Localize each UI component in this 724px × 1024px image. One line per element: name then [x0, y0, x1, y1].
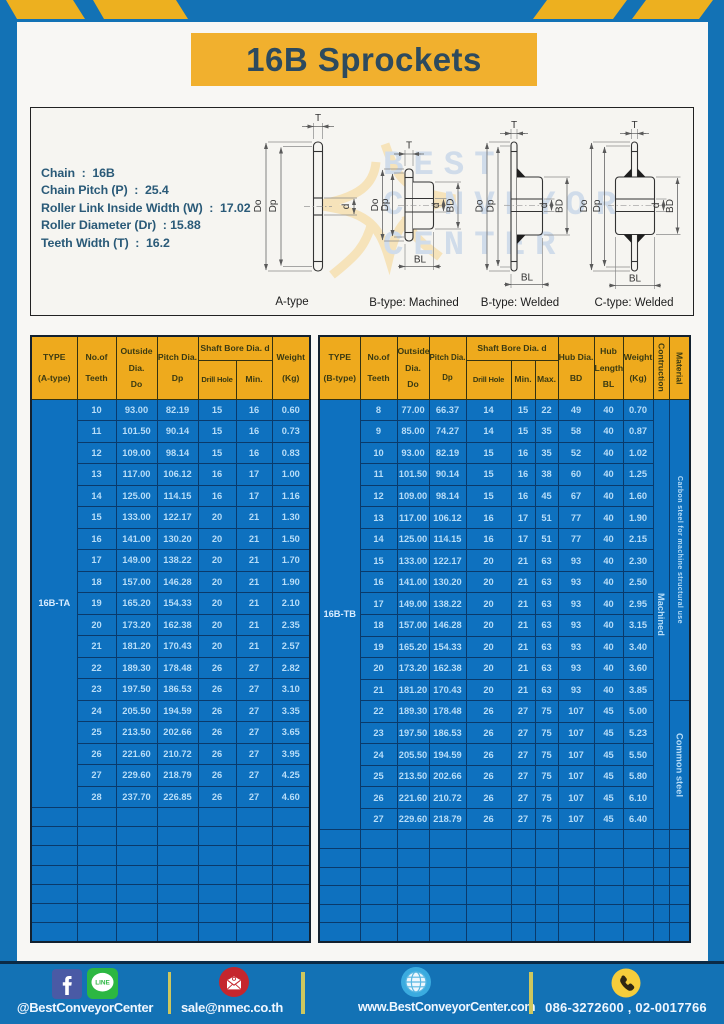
svg-text:Do: Do — [475, 199, 486, 212]
svg-text:T: T — [511, 120, 517, 131]
svg-text:d: d — [341, 204, 352, 210]
svg-text:Dp: Dp — [268, 199, 279, 212]
svg-text:LINE: LINE — [95, 980, 110, 987]
svg-text:d: d — [539, 203, 550, 209]
svg-text:Do: Do — [253, 199, 264, 212]
svg-text:BD: BD — [665, 199, 676, 213]
svg-text:Dp: Dp — [592, 199, 603, 212]
svg-text:T: T — [315, 113, 321, 124]
svg-text:d: d — [651, 203, 662, 209]
svg-text:BL: BL — [414, 255, 427, 266]
svg-text:BL: BL — [521, 273, 534, 284]
svg-text:C-type: Welded: C-type: Welded — [594, 297, 673, 309]
svg-text:Dp: Dp — [380, 198, 391, 211]
svg-text:Dp: Dp — [486, 199, 497, 212]
svg-text:BD: BD — [446, 199, 457, 213]
svg-text:d: d — [431, 203, 442, 209]
svg-text:A-type: A-type — [275, 296, 308, 308]
svg-text:BD: BD — [555, 199, 566, 213]
svg-text:BL: BL — [629, 274, 642, 285]
svg-text:Do: Do — [579, 199, 590, 212]
svg-text:T: T — [631, 120, 637, 131]
svg-text:B-type: Welded: B-type: Welded — [481, 297, 559, 309]
svg-text:T: T — [406, 141, 412, 152]
svg-text:B-type: Machined: B-type: Machined — [369, 297, 459, 309]
